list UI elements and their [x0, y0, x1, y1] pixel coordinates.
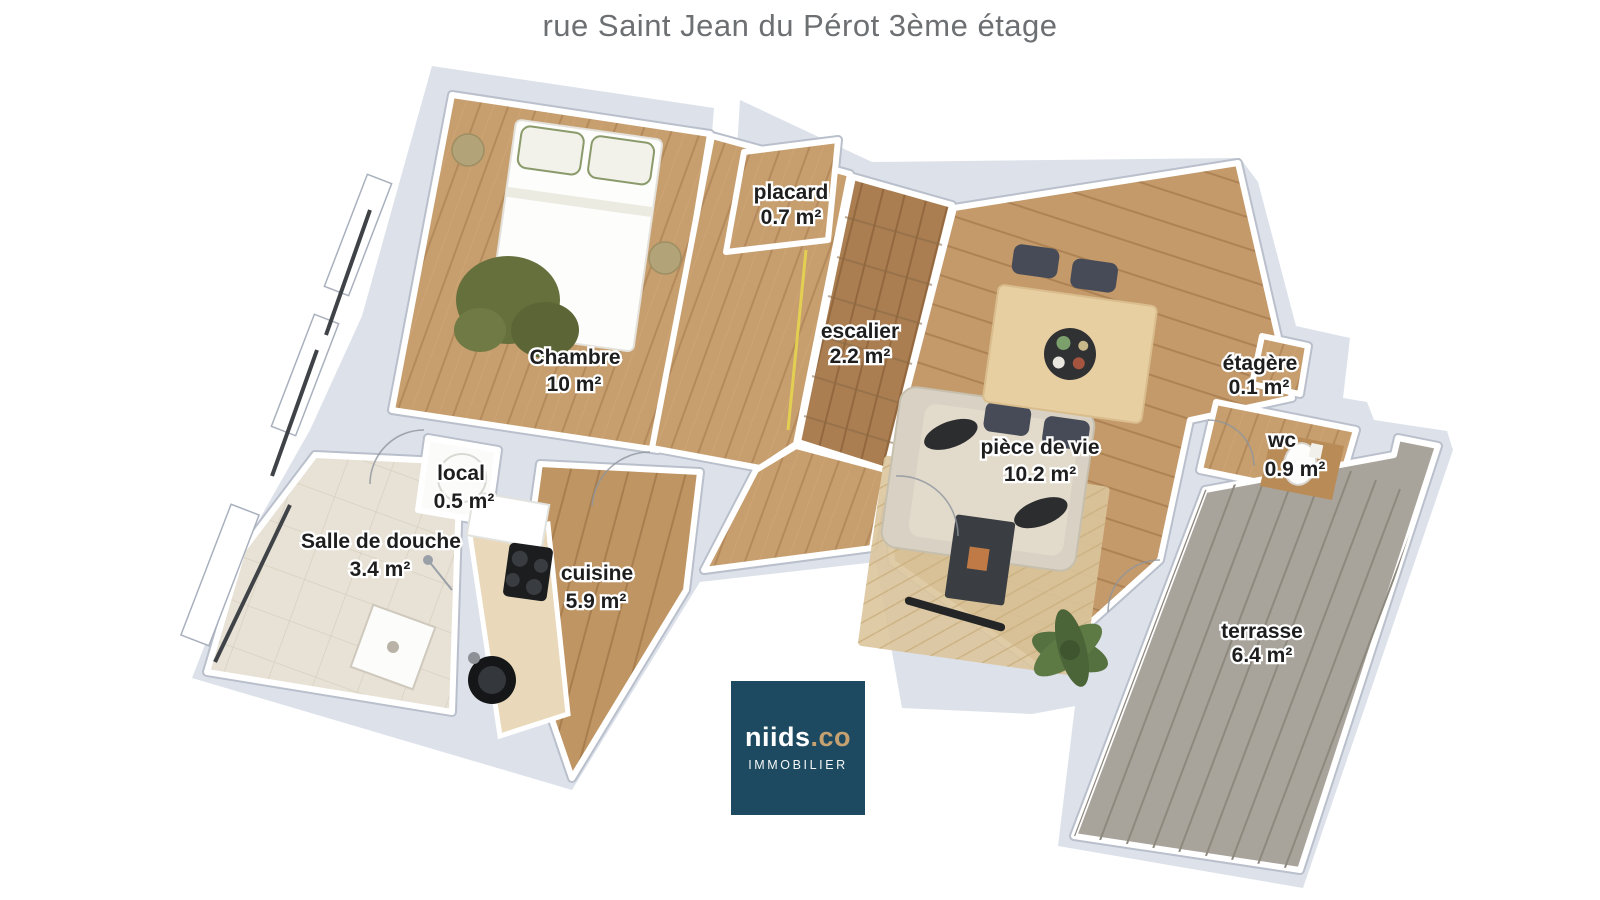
agency-logo-tagline: IMMOBILIER: [748, 758, 848, 772]
room-label-wc-area: 0.9 m²: [1265, 458, 1326, 481]
room-label-etagere-area: 0.1 m²: [1229, 376, 1290, 399]
agency-logo: niids.co IMMOBILIER: [731, 681, 865, 815]
room-label-terrasse-area: 6.4 m²: [1232, 644, 1293, 667]
agency-logo-brand: niids.co: [745, 724, 851, 751]
cooktop: [502, 542, 553, 602]
room-label-etagere-name: étagère: [1223, 352, 1298, 375]
kitchen-faucet: [468, 652, 480, 664]
room-label-piece-de-vie-area: 10.2 m²: [1004, 463, 1076, 486]
room-label-piece-de-vie-name: pièce de vie: [980, 436, 1099, 459]
room-label-wc-name: wc: [1267, 429, 1296, 452]
tv-console: [944, 514, 1015, 606]
room-label-escalier-name: escalier: [821, 320, 899, 343]
pillow-right: [587, 135, 655, 185]
room-label-salle-de-douche-area: 3.4 m²: [350, 558, 411, 581]
room-label-cuisine-name: cuisine: [561, 562, 633, 585]
pillow-left: [517, 125, 585, 175]
room-label-cuisine-area: 5.9 m²: [566, 590, 627, 613]
room-label-salle-de-douche-name: Salle de douche: [301, 530, 461, 553]
dining-chair-2: [1069, 258, 1119, 294]
room-label-local-name: local: [437, 462, 485, 485]
room-label-escalier-area: 2.2 m²: [830, 345, 891, 368]
dining-chair-1: [1011, 243, 1061, 279]
agency-logo-brand-name: niids: [745, 722, 811, 752]
room-label-terrasse-name: terrasse: [1221, 620, 1303, 643]
bedside-stool-right: [649, 242, 681, 274]
room-label-placard-name: placard: [754, 181, 829, 204]
room-label-placard-area: 0.7 m²: [761, 206, 822, 229]
agency-logo-brand-tld: .co: [811, 722, 852, 752]
room-label-chambre-name: Chambre: [529, 346, 620, 369]
bedside-stool-left: [452, 134, 484, 166]
room-label-chambre-area: 10 m²: [547, 373, 602, 396]
floor-plan-page: rue Saint Jean du Pérot 3ème étage: [0, 0, 1600, 900]
room-label-local-area: 0.5 m²: [434, 490, 495, 513]
